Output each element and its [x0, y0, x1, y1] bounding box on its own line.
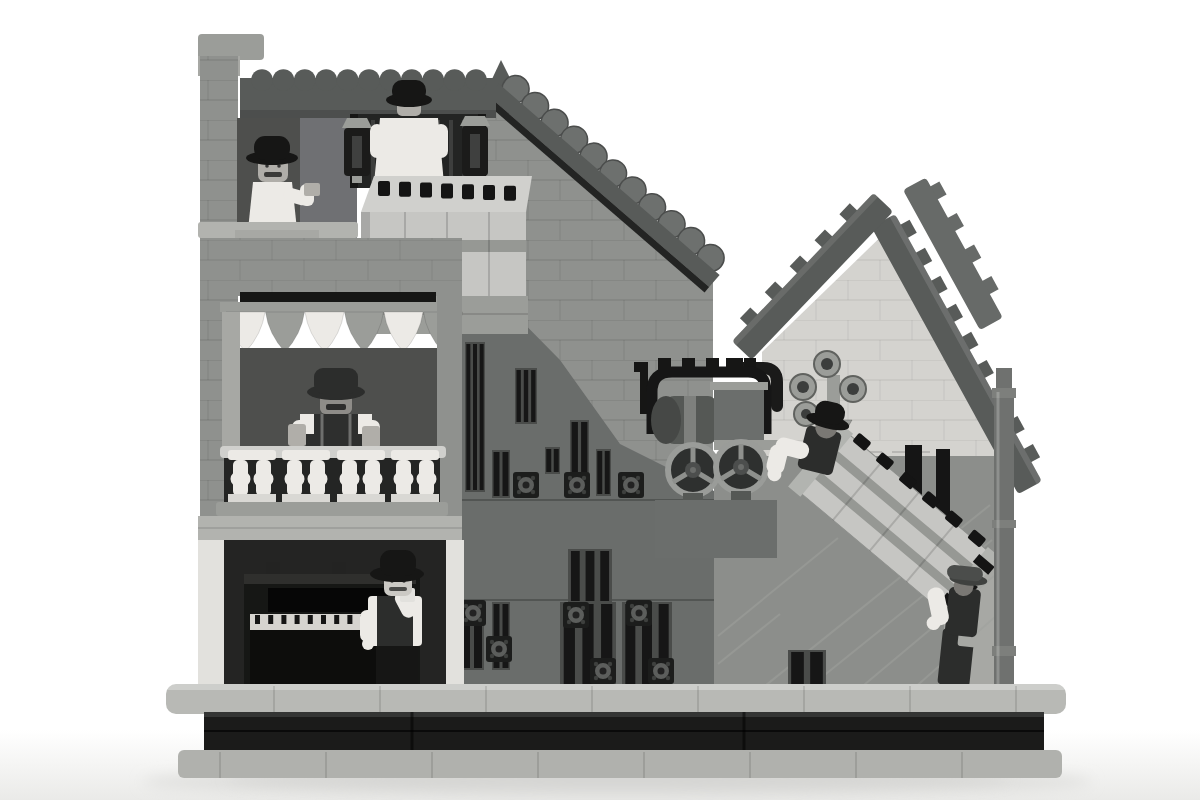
scene-canvas: [0, 0, 1200, 800]
base-plinth: [166, 684, 1066, 778]
balustrade: [216, 446, 448, 516]
lantern-icon-left: [342, 118, 372, 183]
lego-render-image: [0, 0, 1200, 800]
stein-right: [362, 426, 380, 448]
parapet-scallops: [251, 69, 487, 91]
base-bottom-course: [178, 750, 1062, 778]
teacup: [304, 183, 320, 196]
flange-icon: [790, 374, 816, 400]
awning-rail: [220, 302, 466, 312]
white-pilaster-right: [446, 540, 464, 688]
flange-icon: [840, 376, 866, 402]
spoked-wheel-left: [666, 443, 720, 497]
loco-pedestal: [655, 500, 777, 558]
stein-left: [288, 424, 306, 446]
flange-icon: [814, 351, 840, 377]
spoked-wheel-right: [714, 440, 768, 494]
white-pilaster-left: [198, 540, 224, 688]
right-pilaster: [437, 296, 462, 518]
drainpipe: [992, 368, 1016, 690]
